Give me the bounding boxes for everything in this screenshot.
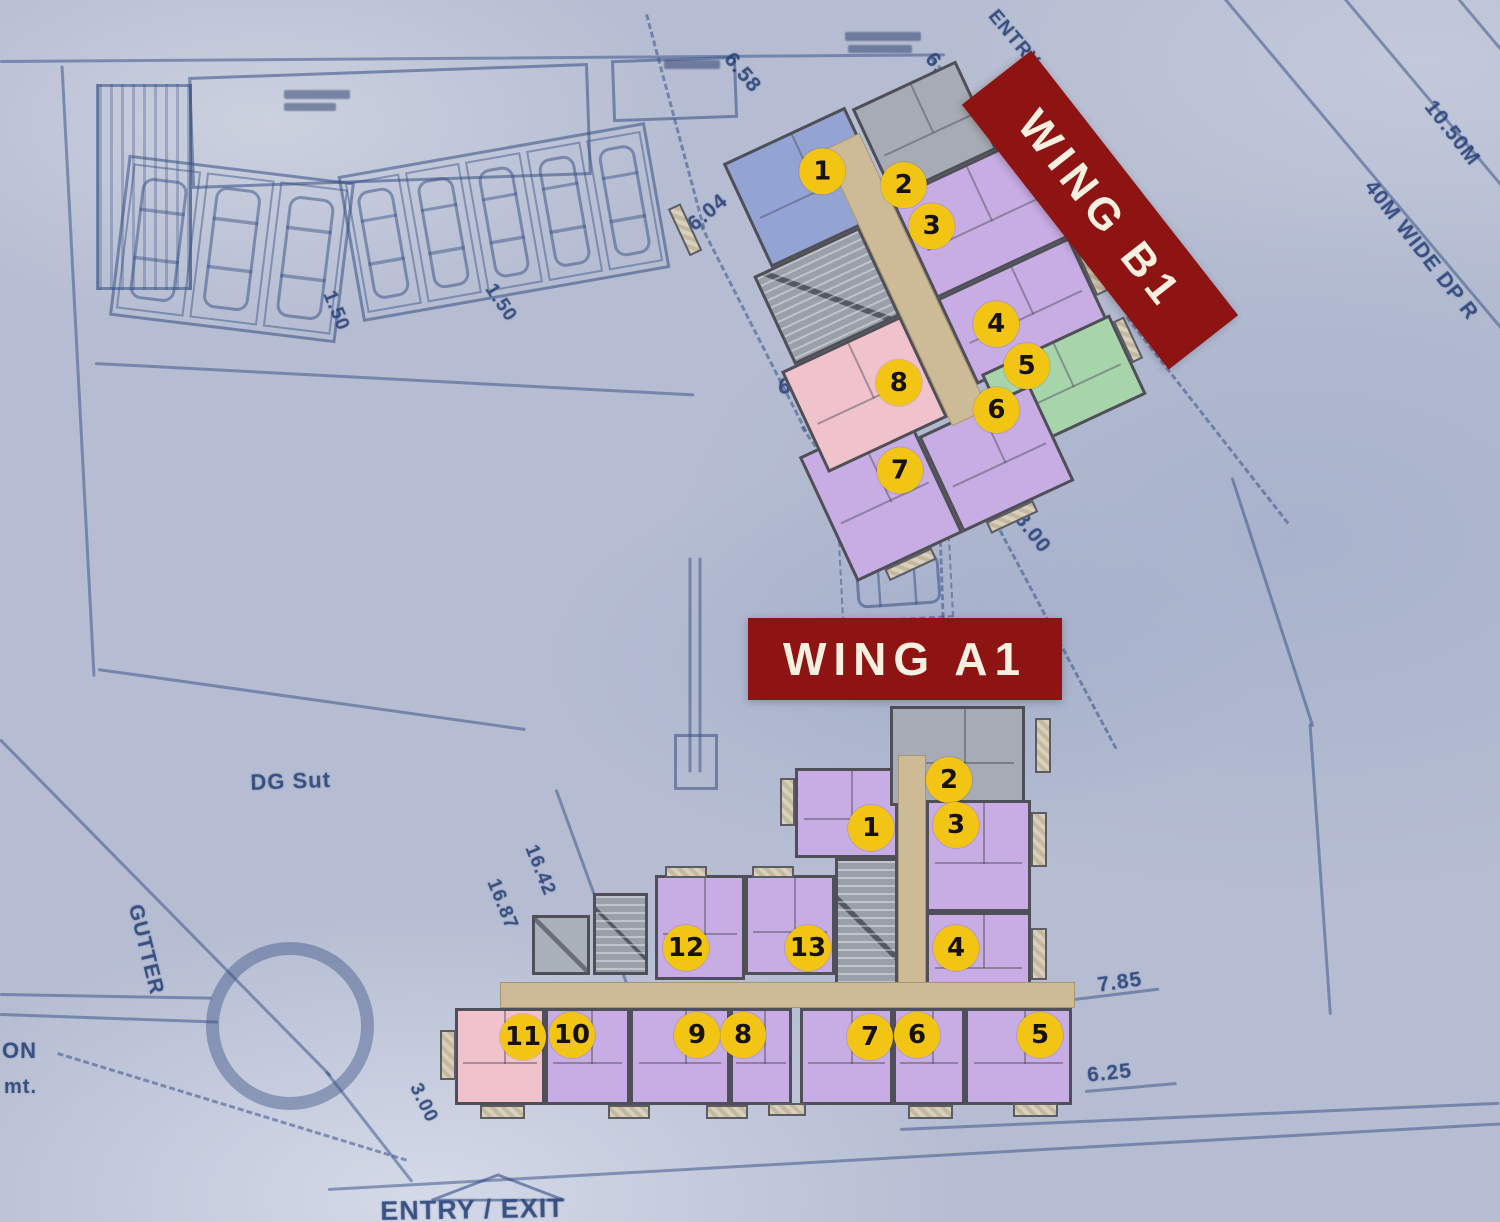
wing-b1-unit-marker-1[interactable]: 1 <box>799 148 845 194</box>
wing-a1-unit-marker-6[interactable]: 6 <box>894 1012 940 1058</box>
wing-a1-unit-marker-10[interactable]: 10 <box>549 1012 595 1058</box>
site-text-label: DG Sut <box>250 767 331 796</box>
balcony <box>768 1103 806 1116</box>
site-text-label: GUTTER <box>123 902 169 997</box>
blueprint-line <box>0 1013 218 1024</box>
blueprint-line <box>61 65 96 676</box>
wing-a1-unit-marker-7[interactable]: 7 <box>847 1014 893 1060</box>
turnaround-road-ring <box>206 942 374 1110</box>
balcony <box>1013 1103 1058 1117</box>
lift-core <box>532 915 590 975</box>
parking-stall <box>189 172 274 325</box>
wing-a1-unit-marker-11[interactable]: 11 <box>500 1014 546 1060</box>
wing-a1-unit-marker-8[interactable]: 8 <box>720 1012 766 1058</box>
balcony <box>1035 718 1051 773</box>
wing-a1-unit-marker-13[interactable]: 13 <box>785 925 831 971</box>
blueprint-line <box>1231 477 1315 727</box>
blueprint-line <box>0 53 945 63</box>
blueprint-line <box>0 993 212 1000</box>
site-text-label: mt. <box>4 1076 37 1099</box>
balcony <box>706 1105 748 1119</box>
wing-b1-unit-marker-2[interactable]: 2 <box>881 162 927 208</box>
wing-a1-unit-marker-2[interactable]: 2 <box>926 757 972 803</box>
parking-carport <box>109 155 355 344</box>
balcony <box>1031 812 1047 867</box>
blueprint-line <box>1309 723 1332 1014</box>
wing-a1-unit-marker-3[interactable]: 3 <box>933 802 979 848</box>
wing-b1-unit-marker-5[interactable]: 5 <box>1004 343 1050 389</box>
site-text-label: ON <box>2 1038 37 1064</box>
stair-core <box>835 858 898 998</box>
blueprint-line <box>1211 0 1500 429</box>
balcony <box>608 1105 650 1119</box>
site-text-label: 10.50M <box>1419 96 1485 171</box>
site-text-label: 40M WIDE DP R <box>1359 176 1483 325</box>
site-text-label: 6.25 <box>1086 1059 1133 1088</box>
wing-b1-unit-marker-6[interactable]: 6 <box>973 387 1019 433</box>
wing-a1-corridor <box>500 982 1075 1008</box>
wing-b1-unit-marker-7[interactable]: 7 <box>877 447 923 493</box>
blueprint-text-smudge <box>664 60 720 69</box>
wing-a1-corridor <box>898 755 926 1007</box>
wing-a1-unit-marker-1[interactable]: 1 <box>848 805 894 851</box>
balcony <box>480 1105 525 1119</box>
wing-a1-label[interactable]: WING A1 <box>748 618 1062 700</box>
wing-a1-unit-marker-12[interactable]: 12 <box>663 925 709 971</box>
parking-stall <box>116 163 201 316</box>
wing-a1-unit-marker-9[interactable]: 9 <box>674 1012 720 1058</box>
blueprint-text-smudge <box>284 90 350 99</box>
wing-a1-floorplan: 12345678910111213 <box>440 700 1090 1130</box>
blueprint-line <box>95 362 694 396</box>
blueprint-text-smudge <box>845 32 921 41</box>
balcony <box>908 1105 953 1119</box>
balcony <box>780 778 795 826</box>
wing-a1-label-text: WING A1 <box>783 632 1027 686</box>
blueprint-text-smudge <box>284 103 336 111</box>
wing-b1-unit-marker-3[interactable]: 3 <box>909 203 955 249</box>
balcony <box>440 1030 456 1080</box>
entry-arrow-icon <box>428 1172 568 1204</box>
balcony <box>1031 928 1047 980</box>
blueprint-text-smudge <box>848 45 912 53</box>
balcony <box>665 866 707 878</box>
wing-a1-unit-marker-5[interactable]: 5 <box>1017 1012 1063 1058</box>
wing-b1-unit-marker-8[interactable]: 8 <box>876 360 922 406</box>
balcony <box>752 866 794 878</box>
wing-a1-unit-marker-4[interactable]: 4 <box>933 925 979 971</box>
stair-core <box>593 893 648 975</box>
wing-b1-unit-marker-4[interactable]: 4 <box>973 301 1019 347</box>
site-plan-canvas: 6.586.03ENTRY6.046.061.501.508.0010.50M4… <box>0 0 1500 1222</box>
site-text-label: 3.00 <box>404 1080 442 1126</box>
